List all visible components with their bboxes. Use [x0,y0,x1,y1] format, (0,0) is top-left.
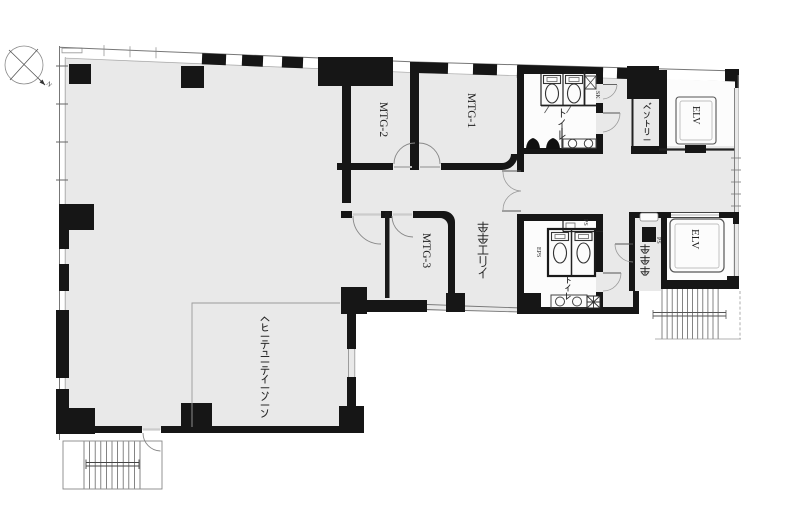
svg-text:MTG-2: MTG-2 [377,102,389,137]
svg-text:PS: PS [582,219,588,226]
svg-text:EPS: EPS [535,247,541,257]
svg-text:N: N [45,80,53,88]
svg-text:MTG-1: MTG-1 [465,93,477,128]
svg-text:MTG-3: MTG-3 [420,233,432,268]
svg-text:ELV: ELV [690,106,701,125]
svg-text:PS: PS [655,237,661,244]
svg-text:SK: SK [594,91,600,99]
svg-text:ELV: ELV [689,229,701,249]
